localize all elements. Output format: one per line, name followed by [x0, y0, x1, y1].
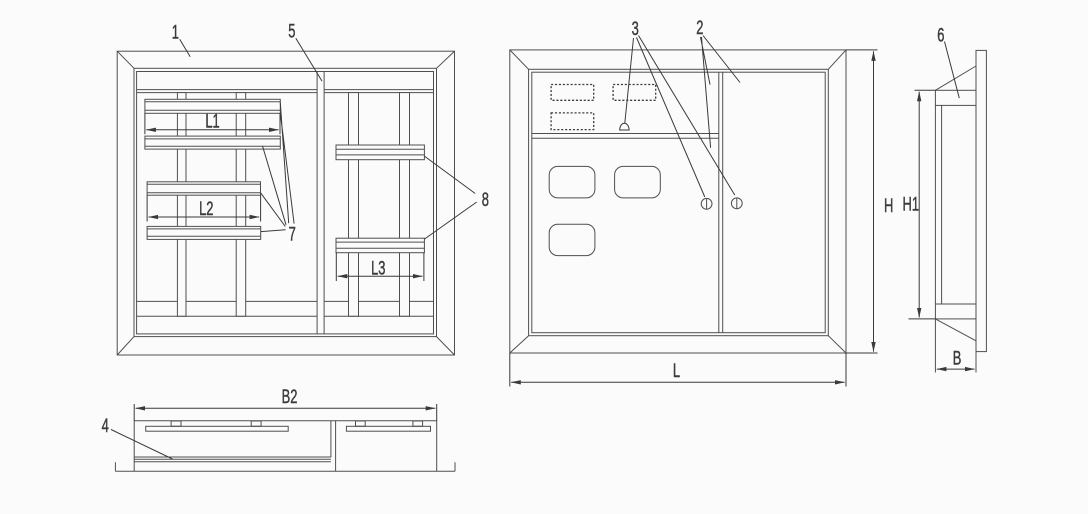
svg-text:5: 5 [288, 21, 295, 42]
svg-text:6: 6 [937, 25, 944, 46]
svg-text:L1: L1 [205, 111, 219, 132]
svg-text:3: 3 [632, 18, 639, 39]
svg-text:L2: L2 [199, 198, 213, 219]
svg-text:H: H [884, 196, 893, 217]
svg-text:7: 7 [289, 224, 296, 245]
svg-text:B: B [953, 348, 962, 369]
svg-text:2: 2 [696, 18, 703, 39]
svg-text:8: 8 [482, 190, 489, 211]
svg-text:4: 4 [102, 416, 109, 437]
svg-text:H1: H1 [903, 194, 920, 215]
svg-text:L3: L3 [371, 258, 385, 279]
svg-text:L: L [673, 361, 680, 382]
svg-text:1: 1 [172, 22, 179, 43]
svg-text:B2: B2 [282, 387, 298, 408]
